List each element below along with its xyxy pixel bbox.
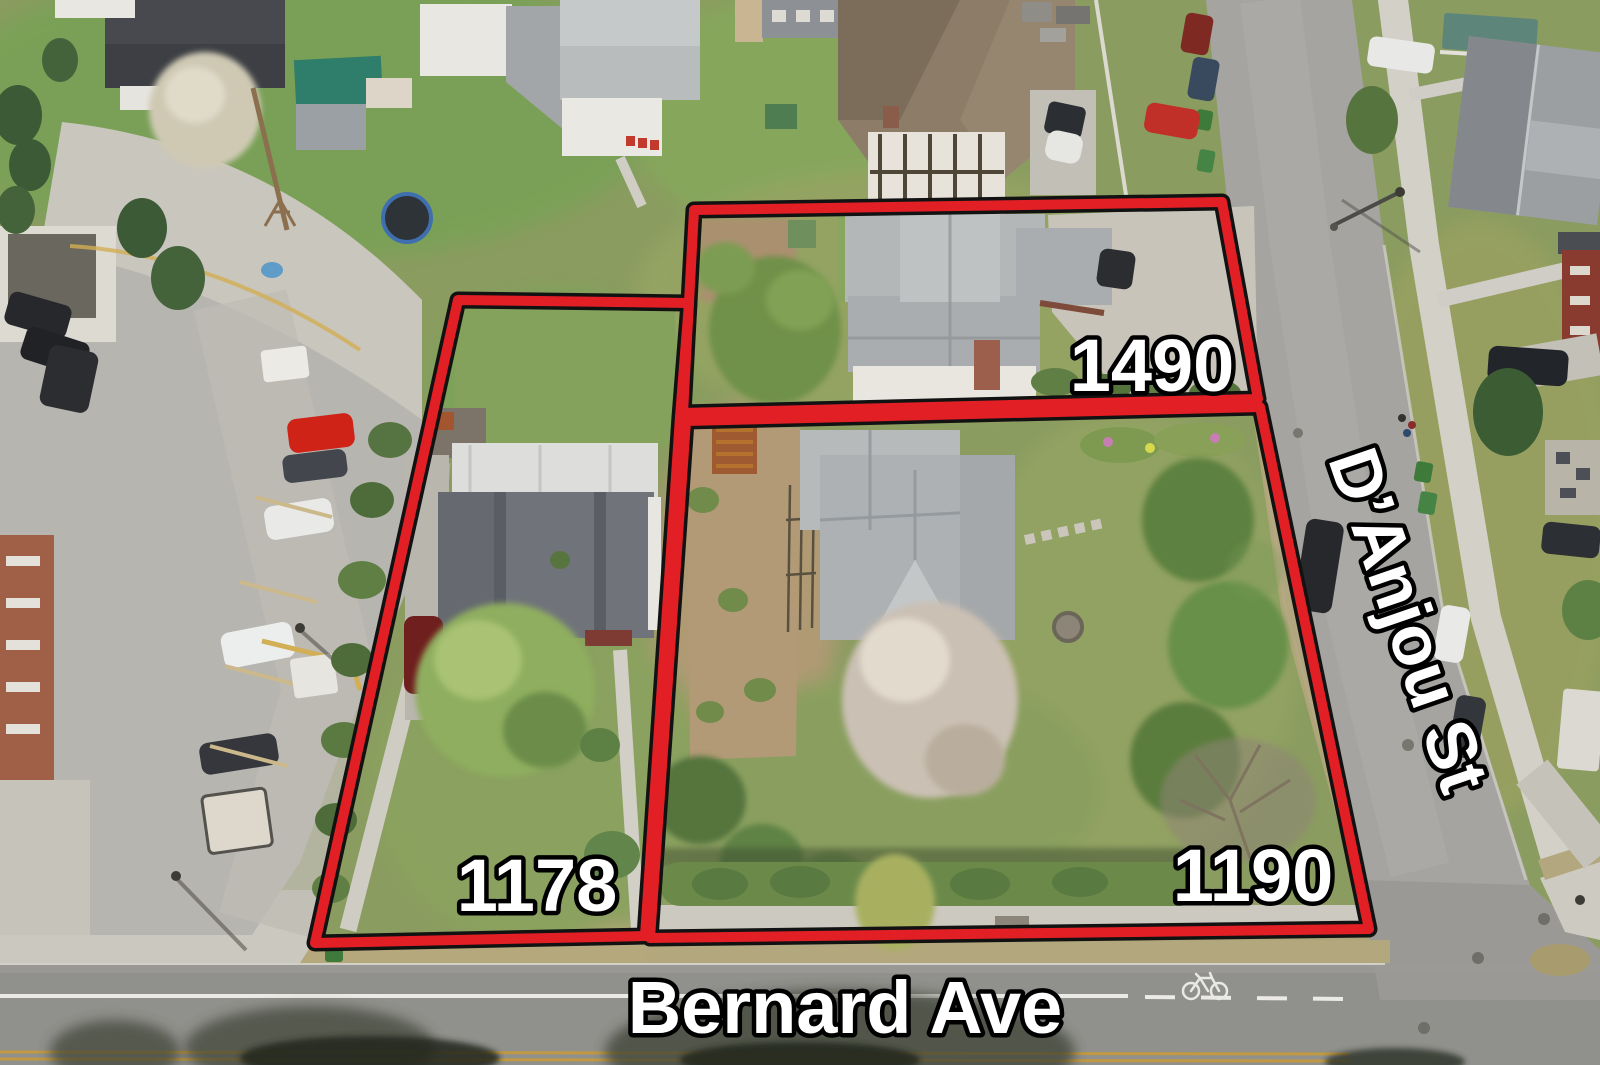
- streetlight: [171, 871, 181, 881]
- white-garage: [1557, 688, 1600, 771]
- gravel-patio: [1545, 440, 1600, 515]
- blossom-tree: [842, 602, 1018, 798]
- manhole: [1472, 952, 1484, 964]
- streetlight: [295, 623, 305, 633]
- shrub: [550, 551, 570, 569]
- chimney: [974, 340, 1000, 390]
- street-label-bernard: Bernard Ave: [628, 966, 1063, 1049]
- brick-building: [0, 535, 54, 780]
- manhole: [1293, 428, 1303, 438]
- deck: [366, 78, 412, 108]
- fire-pit: [1054, 613, 1082, 641]
- gray-roof-house: [1448, 36, 1600, 225]
- shed: [735, 0, 763, 42]
- lot-label-1190: 1190: [1173, 834, 1334, 917]
- suv: [1096, 248, 1137, 291]
- manhole: [1418, 1022, 1430, 1034]
- streetlight: [1575, 895, 1585, 905]
- trampoline: [383, 194, 431, 242]
- lot-label-1178: 1178: [457, 844, 618, 927]
- tarp-roof: [296, 104, 366, 150]
- carport-1490: [1016, 228, 1112, 313]
- chimney: [883, 106, 899, 128]
- aerial-photo: 1490 1178 1190 D’Anjou St Bernard Ave: [0, 0, 1600, 1065]
- garage: [55, 0, 135, 18]
- porch: [585, 630, 632, 646]
- green-shed: [788, 220, 816, 248]
- dry-grass: [1530, 944, 1590, 976]
- kiddie-pool: [261, 262, 283, 278]
- house-1490: [845, 214, 1045, 403]
- tree: [695, 242, 755, 294]
- manhole: [1538, 913, 1550, 925]
- house-wall-white: [420, 4, 512, 76]
- building-apron: [0, 780, 90, 935]
- greenhouse-tarp: [765, 104, 797, 129]
- spruce-tree: [1473, 368, 1543, 456]
- car: [1540, 521, 1600, 559]
- bus-shelter: [201, 788, 272, 854]
- tree: [1346, 86, 1398, 154]
- lot-label-1490: 1490: [1070, 324, 1235, 407]
- aerial-scene: 1490 1178 1190 D’Anjou St Bernard Ave: [0, 0, 1600, 1065]
- trash-bin: [1413, 461, 1433, 484]
- white-canopy: [260, 345, 310, 382]
- backyard-lawn: [455, 306, 675, 446]
- shrub: [580, 728, 620, 762]
